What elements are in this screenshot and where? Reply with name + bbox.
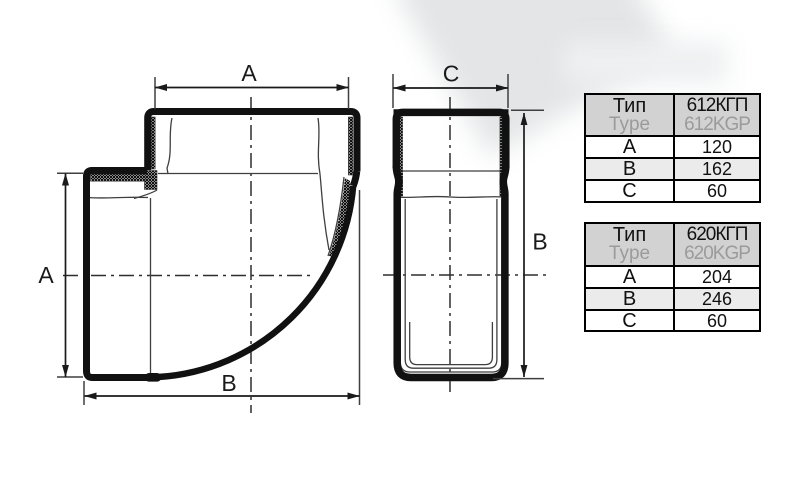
- svg-text:B: B: [221, 370, 236, 396]
- svg-text:A: A: [38, 262, 54, 288]
- svg-text:A: A: [241, 60, 257, 86]
- svg-text:C: C: [443, 61, 460, 87]
- svg-text:B: B: [532, 229, 547, 255]
